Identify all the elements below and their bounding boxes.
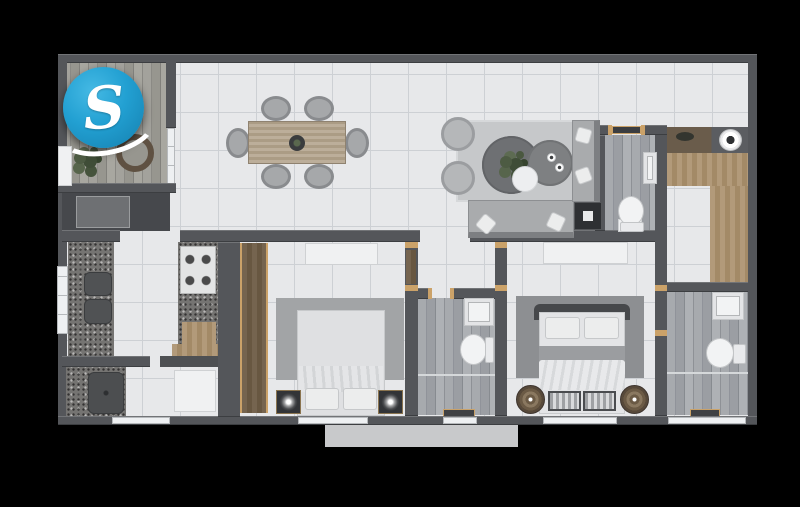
doorframe-bathroom1-a: [428, 288, 432, 299]
powder-sink: [643, 152, 657, 184]
wall-bedroom2-left: [495, 242, 507, 416]
pouf: [441, 161, 475, 195]
master-pillow: [584, 317, 619, 339]
logo-letter: S: [81, 77, 127, 138]
doorframe-master-bath-a: [655, 285, 667, 291]
utility-round-sink: [719, 129, 742, 151]
window-master-bathroom: [668, 417, 746, 424]
window-laundry: [112, 417, 170, 424]
washing-machine: [174, 370, 216, 412]
master-stool: [620, 385, 649, 414]
doorframe-master-bath-b: [655, 330, 667, 336]
utility-counter-side: [710, 186, 748, 282]
nightstand-lamp: [276, 390, 301, 414]
wall-master-bathroom-top: [667, 282, 748, 292]
sofa-side-table-tray: [583, 211, 593, 221]
bedroom1-pillow: [343, 388, 377, 410]
floor-plan: S: [0, 0, 800, 507]
doorframe-bedroom2-a: [495, 242, 507, 248]
wall-kitchen-top: [62, 230, 120, 242]
master-pillow: [545, 317, 580, 339]
balcony-wall-right: [166, 54, 176, 128]
master-bench-cushion: [583, 391, 616, 411]
utility-counter-top: [667, 152, 748, 186]
wall-top: [58, 54, 757, 63]
logo-circle: S: [63, 67, 144, 148]
dining-chair: [226, 128, 250, 158]
master-bathroom-toilet-tank: [733, 344, 746, 364]
wall-powder-top-b: [645, 125, 667, 135]
kitchen-sink-basin: [84, 272, 112, 296]
wall-bathroom1-top-a: [418, 288, 428, 299]
bathroom1-sink: [464, 298, 494, 326]
window-bedroom2: [543, 417, 617, 424]
master-stool: [516, 385, 545, 414]
master-duvet: [539, 360, 625, 390]
cup: [555, 163, 564, 172]
powder-door: [612, 126, 641, 134]
dining-chair: [304, 96, 334, 121]
stove: [180, 246, 216, 294]
bedroom1-duvet: [299, 316, 383, 368]
nightstand-lamp: [378, 390, 403, 414]
doorframe-bedroom1-a: [405, 242, 418, 248]
balcony-glass-door: [167, 128, 175, 185]
bathroom1-toilet-tank: [485, 337, 494, 363]
shower-glass-2: [667, 372, 748, 374]
master-bathroom-toilet-bowl: [706, 338, 734, 368]
bedroom1-wardrobe: [240, 243, 268, 413]
bathroom1-toilet-bowl: [460, 334, 487, 365]
master-dresser: [543, 242, 628, 264]
doorframe-bedroom2-b: [495, 285, 507, 291]
dining-centerpiece: [289, 135, 305, 151]
balcony-wall-bottom: [58, 183, 176, 193]
wall-right: [748, 54, 757, 425]
dining-chair: [261, 164, 291, 189]
bedroom1-pillow: [305, 388, 339, 410]
doorframe-bathroom1-b: [450, 288, 454, 299]
kitchen-sink-basin: [84, 299, 112, 324]
dining-chair: [345, 128, 369, 158]
doorframe-bedroom1-b: [405, 285, 418, 291]
powder-toilet-tank: [620, 222, 644, 232]
bedroom1-door: [406, 250, 416, 284]
master-bench-cushion: [548, 391, 581, 411]
coffee-table-plant: [500, 156, 512, 168]
cup: [547, 153, 556, 162]
doorframe-powder-b: [641, 125, 645, 135]
window-bedroom1: [298, 417, 368, 424]
laundry-sink: [88, 372, 124, 414]
utility-decor: [676, 132, 694, 141]
entry-door: [76, 196, 130, 228]
shower-glass-1: [418, 374, 496, 376]
pouf: [441, 117, 475, 151]
laundry-shelf-dark: [160, 356, 218, 367]
side-table-white: [512, 166, 538, 192]
wall-bedroom1-top: [180, 230, 420, 242]
master-bathroom-sink: [712, 292, 744, 320]
bedroom1-dresser: [305, 243, 378, 265]
dining-chair: [304, 164, 334, 189]
window-bathroom1: [443, 417, 477, 424]
wall-laundry: [62, 356, 150, 367]
wall-kitchen-column: [218, 242, 240, 417]
kitchen-window: [57, 266, 68, 334]
dining-chair: [261, 96, 291, 121]
